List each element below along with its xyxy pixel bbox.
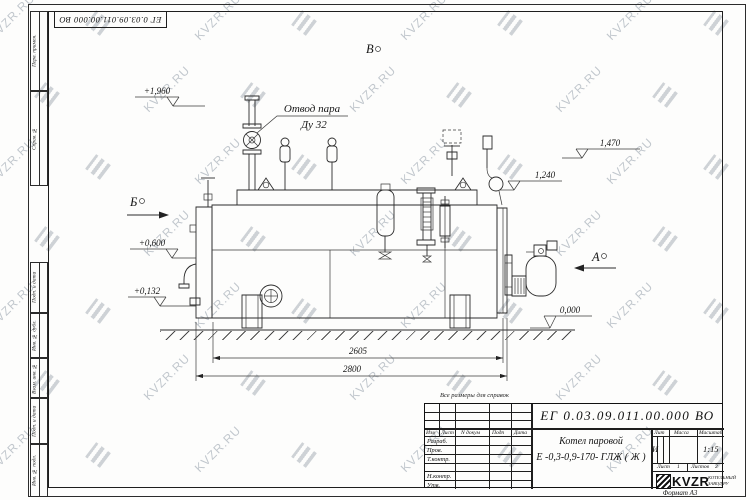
tb-lit-label: Лит bbox=[654, 430, 664, 436]
tb-row-tkontr: Т.контр. bbox=[427, 456, 450, 463]
tb-scale-value: 1:15 bbox=[703, 444, 719, 454]
kvzr-logo-text: KVZR bbox=[672, 474, 709, 489]
tb-col-list: Лист bbox=[441, 430, 454, 436]
view-arrow-a: А bbox=[574, 250, 616, 272]
elevation-value: +1,960 bbox=[144, 86, 171, 96]
format-label: Формат А3 bbox=[630, 489, 730, 497]
elevation-value: 0,000 bbox=[560, 305, 581, 315]
lifting-lugs bbox=[258, 178, 471, 190]
manhole bbox=[260, 285, 282, 307]
tb-sheets-label: Листов bbox=[691, 464, 709, 470]
tb-row-prov: Пров. bbox=[427, 447, 442, 454]
tb-col-izm: Изм bbox=[426, 430, 436, 436]
view-label-a: А bbox=[591, 250, 600, 264]
tb-mass-label: Масса bbox=[674, 430, 689, 436]
view-arrow-b: Б bbox=[127, 195, 169, 219]
tb-scale-label: Масштаб bbox=[699, 430, 722, 436]
dimension-2605: 2605 bbox=[213, 318, 503, 363]
title-block: Изм Лист N докум Подп Дата Разраб. Пров.… bbox=[424, 403, 723, 488]
dim-overall-value: 2800 bbox=[343, 364, 362, 374]
front-fittings bbox=[179, 178, 215, 316]
tb-col-podp: Подп bbox=[492, 430, 504, 436]
top-valve-assembly bbox=[443, 130, 461, 176]
elevation-value: 1,470 bbox=[600, 138, 621, 148]
tb-sheet-value: 1 bbox=[677, 464, 680, 470]
reference-note: Все размеры для справок bbox=[440, 392, 509, 399]
elevation-value: 1,240 bbox=[535, 170, 556, 180]
tb-row-utv: Утв. bbox=[427, 482, 440, 489]
tb-col-data: Дата bbox=[514, 430, 527, 436]
burner-assembly bbox=[505, 241, 557, 296]
tb-lit-value: И bbox=[652, 444, 658, 454]
tb-row-nkontr: Н.контр. bbox=[427, 473, 451, 480]
kvzr-logo-caption-1: КОТЕЛЬНЫЙ bbox=[708, 475, 736, 480]
elevation-plus-0132: +0,132 bbox=[128, 286, 196, 306]
elevation-value: +0,600 bbox=[139, 238, 166, 248]
elevation-0000: 0,000 bbox=[530, 305, 592, 328]
view-label-v-text: В bbox=[366, 42, 374, 56]
elevation-plus-0600: +0,600 bbox=[130, 238, 196, 258]
steam-outlet-callout: Отвод пара Ду 32 bbox=[257, 103, 348, 133]
callout-line2: Ду 32 bbox=[300, 119, 327, 131]
tb-row-razrab: Разраб. bbox=[427, 438, 447, 445]
elevation-plus-1960: +1,960 bbox=[135, 86, 205, 106]
elevation-1240: 1,240 bbox=[500, 170, 562, 190]
tb-designation: ЕГ 0.03.09.011.00.000 ВО bbox=[531, 408, 724, 424]
view-label-b: Б bbox=[129, 195, 138, 209]
pressure-gauge bbox=[483, 136, 503, 205]
separator-vessel bbox=[377, 184, 394, 259]
tb-sheet-label: Лист bbox=[657, 464, 670, 470]
dim-inner-value: 2605 bbox=[349, 346, 368, 356]
callout-line1: Отвод пара bbox=[284, 103, 341, 115]
kvzr-logo-icon bbox=[656, 474, 671, 489]
elevation-value: +0,132 bbox=[134, 286, 161, 296]
drawing-sheet: { "watermark": { "text": "KVZR.RU" }, "f… bbox=[0, 0, 750, 500]
tb-product-name-2: Е -0,3-0,9-170- ГЛЖ ( Ж ) bbox=[531, 452, 651, 463]
tb-sheets-value: 2 bbox=[715, 464, 718, 470]
kvzr-logo-caption-2: ЗАВОД.РУ bbox=[708, 481, 729, 486]
tb-product-name-1: Котел паровой bbox=[531, 436, 651, 447]
safety-valves bbox=[280, 138, 337, 190]
elevation-1470: 1,470 bbox=[562, 138, 640, 158]
steam-outlet-valve bbox=[243, 96, 261, 190]
boiler-shell bbox=[196, 190, 507, 318]
tb-col-ndokum: N докум bbox=[461, 430, 480, 436]
view-label-v: В bbox=[366, 42, 381, 56]
